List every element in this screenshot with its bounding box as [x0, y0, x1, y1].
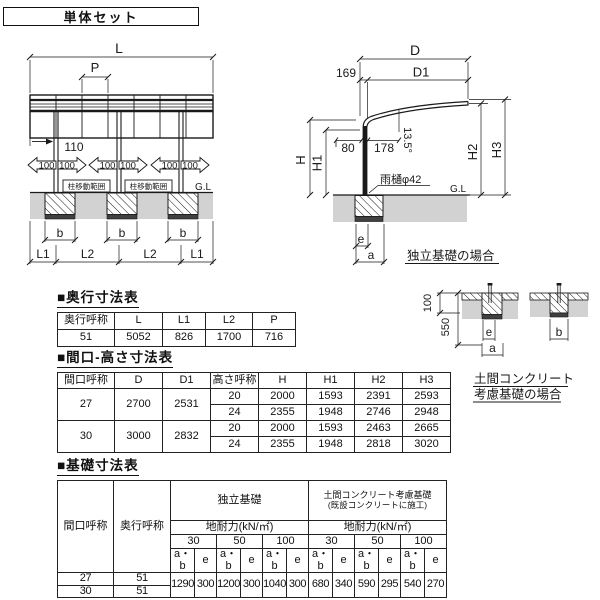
depth-table-header: 奥行呼称 L L1 L2 P [58, 313, 296, 330]
svg-text:b: b [180, 226, 187, 240]
table-row: 27 2700 2531 20 2000 1593 2391 2593 [58, 389, 451, 405]
svg-text:L2: L2 [143, 247, 157, 261]
rain-gutter-label: 雨樋φ42 [369, 172, 430, 193]
depth-table: 奥行呼称 L L1 L2 P 51 5052 826 1700 716 [57, 312, 296, 347]
dim-80-178: 80 178 [334, 138, 401, 156]
svg-text:柱移動範囲: 柱移動範囲 [68, 181, 106, 191]
svg-text:L: L [115, 40, 123, 56]
page-title-box: 単体セット [3, 7, 199, 26]
col-header: L1 [163, 313, 206, 330]
svg-text:100: 100 [162, 161, 178, 172]
size-table-title: ■間口-高さ寸法表 [57, 346, 173, 368]
col-header: P [253, 313, 296, 330]
dim-a-detail: a [482, 341, 503, 357]
group-header-independent: 独立基礎 [171, 481, 309, 521]
foundation-table-block: ■基礎寸法表 間口呼称 奥行呼称 独立基礎 土間コンクリート考慮基礎 (既設コン… [57, 454, 447, 598]
depth-table-title: ■奥行寸法表 [57, 286, 139, 308]
dim-P: P [79, 60, 111, 93]
group-header-slab: 土間コンクリート考慮基礎 (既設コンクリートに施工) [309, 481, 447, 521]
svg-text:L1: L1 [36, 247, 50, 261]
svg-text:100: 100 [59, 161, 75, 172]
slab-foundation-caption: 土間コンクリート 考慮基礎の場合 [473, 372, 574, 402]
svg-text:100: 100 [422, 294, 434, 312]
svg-text:L2: L2 [81, 247, 95, 261]
size-table-block: ■間口-高さ寸法表 間口呼称 D D1 高さ呼称 H H1 H2 H3 27 2… [57, 346, 451, 453]
svg-text:P: P [91, 60, 100, 75]
svg-text:169: 169 [336, 66, 356, 80]
svg-text:178: 178 [374, 141, 394, 155]
svg-text:a: a [489, 341, 496, 355]
col-header: 間口呼称 [58, 481, 114, 573]
svg-text:100: 100 [182, 161, 198, 172]
svg-text:柱移動範囲: 柱移動範囲 [130, 181, 168, 191]
svg-text:13.5°: 13.5° [401, 127, 413, 153]
side-view-drawing: D D1 169 13.5° 80 178 [290, 40, 515, 275]
dim-L: L [27, 40, 216, 93]
svg-text:G.L: G.L [195, 182, 212, 193]
svg-text:H3: H3 [489, 142, 504, 159]
foundations-front [45, 193, 198, 219]
svg-text:D: D [410, 42, 420, 58]
svg-text:H: H [293, 155, 308, 164]
svg-text:b: b [556, 325, 563, 339]
dim-H1: H1 [310, 127, 361, 198]
svg-text:80: 80 [341, 141, 355, 155]
size-table: 間口呼称 D D1 高さ呼称 H H1 H2 H3 27 2700 2531 2… [57, 372, 451, 453]
svg-text:100: 100 [100, 161, 116, 172]
svg-text:b: b [57, 226, 64, 240]
svg-text:G.L: G.L [450, 184, 467, 195]
table-row: 30 3000 2832 20 2000 1593 2463 2665 [58, 421, 451, 437]
catalog-page: 単体セット L P [0, 0, 600, 600]
slab-section-a [462, 283, 518, 319]
size-table-header: 間口呼称 D D1 高さ呼称 H H1 H2 H3 [58, 373, 451, 389]
dim-D1: D1 169 [336, 65, 471, 119]
table-row: 51 5052 826 1700 716 [58, 330, 296, 347]
svg-text:独立基礎の場合: 独立基礎の場合 [407, 248, 495, 263]
page-title: 単体セット [63, 7, 138, 26]
foundation-group-header: 間口呼称 奥行呼称 独立基礎 土間コンクリート考慮基礎 (既設コンクリートに施工… [58, 481, 447, 521]
dim-H2: H2 [465, 101, 488, 199]
front-view-drawing: L P 110 [0, 40, 240, 275]
svg-text:550: 550 [440, 318, 452, 336]
svg-text:雨樋φ42: 雨樋φ42 [380, 172, 421, 186]
svg-text:H1: H1 [310, 155, 325, 172]
dim-100: 100 [422, 290, 462, 316]
dim-110: 110 [30, 138, 84, 154]
dim-b-front: b b b [42, 221, 201, 243]
post-movement-values: 100 100 100 100 100 100 [39, 161, 198, 172]
foundation-table: 間口呼称 奥行呼称 独立基礎 土間コンクリート考慮基礎 (既設コンクリートに施工… [57, 480, 447, 598]
svg-text:考慮基礎の場合: 考慮基礎の場合 [474, 387, 562, 402]
dim-H: H [293, 117, 356, 198]
col-header: 奥行呼称 [58, 313, 115, 330]
dim-b-detail: b [550, 319, 568, 341]
svg-text:e: e [358, 232, 365, 246]
depth-table-block: ■奥行寸法表 奥行呼称 L L1 L2 P 51 5052 826 1700 7… [57, 286, 296, 347]
svg-text:L1: L1 [190, 247, 204, 261]
col-header: 奥行呼称 [114, 481, 171, 573]
svg-text:100: 100 [120, 161, 136, 172]
svg-text:e: e [486, 327, 492, 339]
svg-text:100: 100 [39, 161, 55, 172]
foundation-side [355, 196, 383, 222]
col-header: L2 [206, 313, 253, 330]
foundation-table-title: ■基礎寸法表 [57, 454, 139, 476]
dim-e-detail: e [483, 320, 495, 341]
svg-text:b: b [119, 226, 126, 240]
roof-angle: 13.5° [399, 110, 413, 153]
svg-text:H2: H2 [465, 144, 480, 161]
svg-text:土間コンクリート: 土間コンクリート [474, 372, 574, 386]
svg-text:110: 110 [64, 140, 83, 154]
dim-e-a-side: e a [353, 224, 387, 265]
svg-text:D1: D1 [413, 65, 430, 80]
table-row: 27 51 1290 300 1200 300 1040 300 680 340… [58, 573, 447, 586]
svg-text:a: a [368, 248, 375, 262]
independent-foundation-caption: 独立基礎の場合 [405, 248, 499, 264]
col-header: L [115, 313, 163, 330]
slab-section-b [530, 283, 588, 317]
